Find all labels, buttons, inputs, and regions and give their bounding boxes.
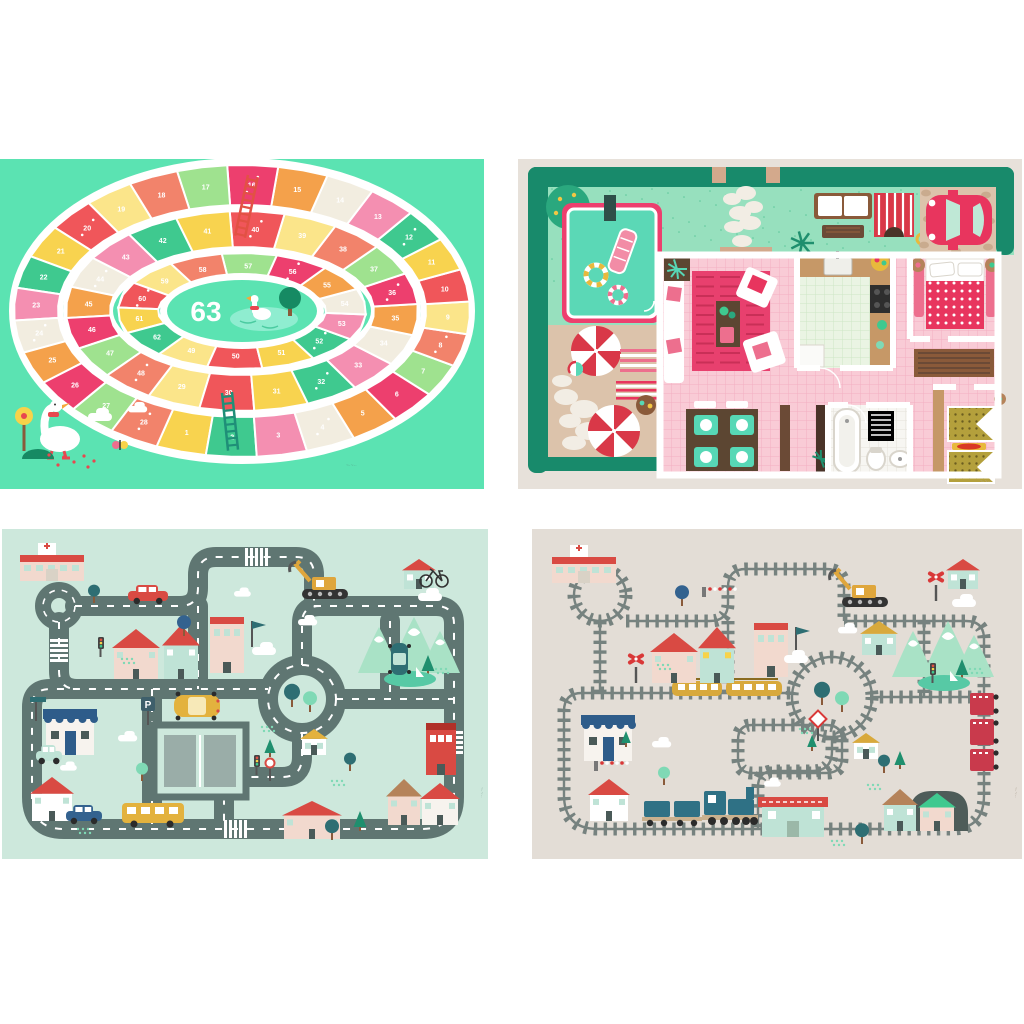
- board-cell-number: 25: [49, 358, 57, 365]
- building-icon: [426, 723, 456, 775]
- board-cell-number: 53: [338, 321, 346, 328]
- board-cell-number: 54: [341, 301, 349, 308]
- board-center: 63: [160, 273, 324, 349]
- board-cell-number: 18: [158, 193, 166, 200]
- board-cell-number: 1: [185, 430, 189, 437]
- board-cell-number: 12: [405, 235, 413, 242]
- board-cell-number: 28: [140, 419, 148, 426]
- railway-track-art: ~·~··: [532, 529, 1022, 859]
- road-traffic-art: P~·~··: [2, 529, 488, 859]
- board-cell-number: 49: [188, 348, 196, 355]
- artist-signature: ~·~··: [1012, 787, 1018, 798]
- sideboard: [914, 349, 994, 377]
- board-cell-number: 43: [122, 255, 130, 262]
- board-cell-number: 47: [106, 351, 114, 358]
- board-cell-number: 37: [370, 266, 378, 273]
- dollhouse-floorplan-mat: ~·~··: [518, 159, 1022, 489]
- goose-game-board-mat: 1234567891011121314151617181920212223242…: [0, 159, 484, 489]
- garden-sofa-icon: [814, 193, 872, 238]
- board-cell-number: 55: [323, 283, 331, 290]
- board-cell-number: 60: [138, 296, 146, 303]
- board-cell-number: 61: [136, 316, 144, 323]
- board-cell-number: 20: [83, 225, 91, 232]
- board-cell-number: 36: [388, 290, 396, 297]
- board-cell-number: 34: [380, 341, 388, 348]
- board-cell-number: 35: [392, 316, 400, 323]
- artist-signature: ~·~··: [478, 787, 484, 798]
- board-cell-number: 38: [339, 247, 347, 254]
- butterfly-icon: [112, 440, 128, 450]
- swimming-pool: [562, 195, 662, 323]
- artist-signature: ~·~··: [346, 463, 357, 469]
- board-cell-number: 56: [289, 269, 297, 276]
- board-cell-number: 52: [315, 339, 323, 346]
- board-cell-number: 42: [159, 238, 167, 245]
- board-cell-number: 46: [88, 327, 96, 334]
- board-cell-number: 58: [199, 267, 207, 274]
- umbrella-icon: [588, 405, 640, 457]
- board-cell-number: 57: [244, 264, 252, 271]
- patio-table-icon: [636, 395, 656, 415]
- board-cell-number: 9: [446, 315, 450, 322]
- board-cell-number: 11: [428, 259, 436, 266]
- board-cell-number: 51: [278, 350, 286, 357]
- yellow-car-top-icon: [174, 692, 220, 721]
- board-cell-number: 7: [421, 369, 425, 376]
- board-cell-number: 4: [321, 425, 325, 432]
- board-cell-number: 14: [336, 198, 344, 205]
- board-cell-number: 33: [354, 362, 362, 369]
- living-room: [664, 257, 787, 383]
- board-cell-number: 31: [273, 388, 281, 395]
- board-cell-number: 3: [276, 433, 280, 440]
- pink-car-top-icon: [926, 190, 992, 250]
- board-cell-number: 22: [40, 275, 48, 282]
- board-cell-number: 6: [395, 392, 399, 399]
- board-cell-number: 10: [441, 286, 449, 293]
- board-cell-number: 26: [71, 382, 79, 389]
- board-cell-number: 32: [317, 379, 325, 386]
- goose-game-board-art: 1234567891011121314151617181920212223242…: [0, 159, 484, 489]
- parking-sign-letter: P: [145, 700, 152, 711]
- board-cell-number: 15: [293, 187, 301, 194]
- board-cell-number: 41: [204, 229, 212, 236]
- board-cell-number: 19: [117, 206, 125, 213]
- dining-area: [686, 401, 758, 478]
- board-cell-number: 24: [35, 331, 43, 338]
- railway-track-mat: ~·~··: [532, 529, 1022, 859]
- artist-signature: ~·~··: [980, 479, 991, 485]
- board-cell-number: 39: [298, 233, 306, 240]
- station-house: [758, 797, 828, 837]
- board-cell-number: 17: [202, 185, 210, 192]
- board-cell-number: 45: [85, 301, 93, 308]
- center-number: 63: [190, 296, 221, 327]
- board-cell-number: 8: [438, 342, 442, 349]
- board-cell-number: 5: [361, 411, 365, 418]
- board-cell-number: 50: [232, 353, 240, 360]
- board-cell-number: 44: [96, 277, 104, 284]
- board-cell-number: 62: [153, 334, 161, 341]
- board-cell-number: 59: [161, 278, 169, 285]
- board-cell-number: 40: [252, 227, 260, 234]
- teal-car-top-icon: [388, 643, 411, 675]
- board-cell-number: 13: [374, 214, 382, 221]
- road-traffic-mat: P~·~··: [2, 529, 488, 859]
- board-cell-number: 48: [137, 370, 145, 377]
- board-cell-number: 21: [57, 249, 65, 256]
- playmat-product-collage: 1234567891011121314151617181920212223242…: [0, 0, 1024, 1024]
- building-icon: [210, 617, 244, 673]
- building-icon: [754, 623, 788, 677]
- board-cell-number: 23: [32, 303, 40, 310]
- board-cell-number: 29: [178, 384, 186, 391]
- dollhouse-floorplan-art: ~·~··: [518, 159, 1022, 489]
